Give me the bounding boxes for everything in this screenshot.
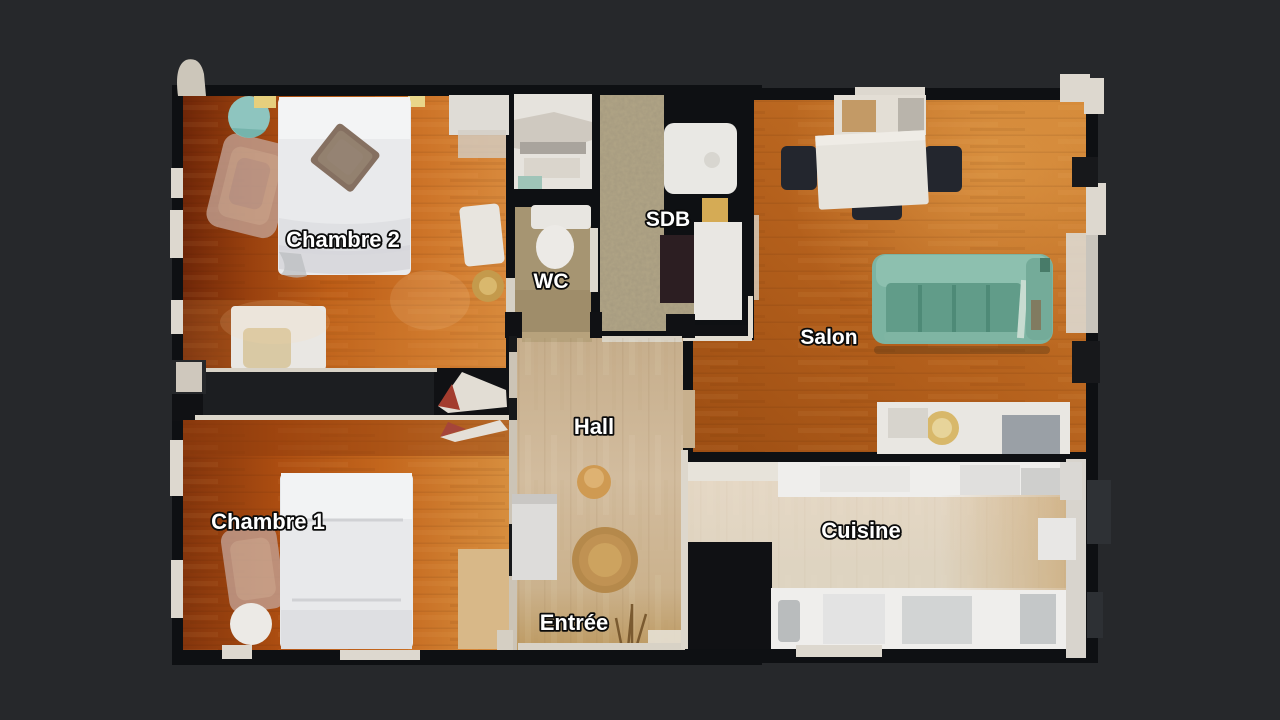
svg-text:Salon: Salon bbox=[800, 326, 857, 349]
svg-text:Chambre 2: Chambre 2 bbox=[286, 227, 400, 252]
svg-text:Entrée: Entrée bbox=[540, 610, 608, 635]
svg-text:SDB: SDB bbox=[646, 208, 690, 231]
svg-text:WC: WC bbox=[534, 270, 569, 293]
svg-text:Cuisine: Cuisine bbox=[821, 518, 900, 543]
svg-text:Chambre 1: Chambre 1 bbox=[211, 509, 325, 534]
svg-text:Hall: Hall bbox=[574, 414, 614, 439]
